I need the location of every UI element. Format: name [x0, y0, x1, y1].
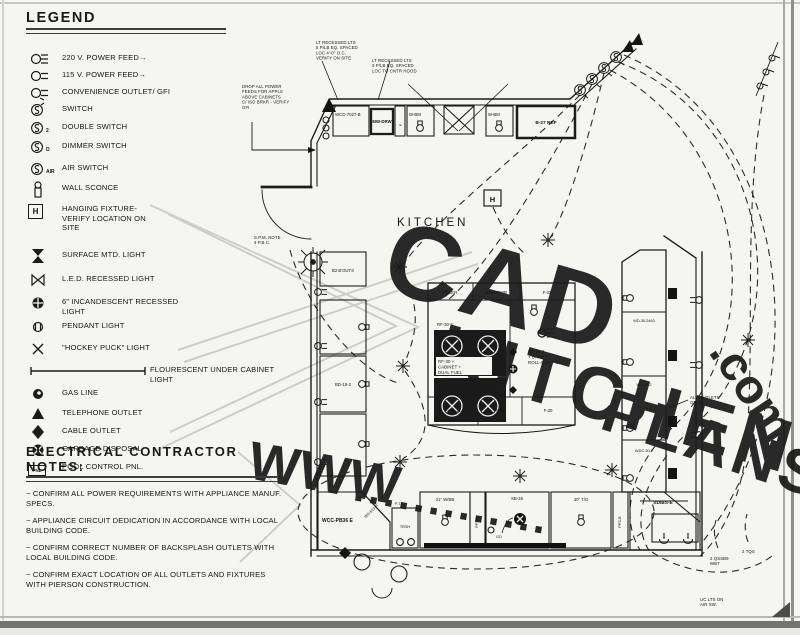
- air-switch-icon: AIR: [28, 160, 62, 178]
- note-item: ~ CONFIRM CORRECT NUMBER OF BACKSPLASH O…: [26, 543, 284, 563]
- legend-item-label: SURFACE MTD. LIGHT: [62, 247, 146, 260]
- legend-item: GAS LINE: [28, 385, 98, 403]
- cabinet-label: PPS-B: [475, 516, 479, 528]
- island-label: F-33: [543, 290, 552, 295]
- disposal-label: GD: [496, 535, 502, 539]
- island-label: RF-30-2: [437, 322, 453, 327]
- telephone-outlet-icon: [28, 405, 62, 423]
- legend-item-label: CABLE OUTLET: [62, 423, 121, 436]
- dimmer-switch-icon: D: [28, 138, 62, 156]
- legend-item-label: "HOCKEY PUCK" LIGHT: [62, 340, 150, 353]
- cabinet-label: WDC-30-2: [635, 449, 653, 453]
- legend-item-label: GAS LINE: [62, 385, 98, 398]
- cable-outlet-icon: [28, 423, 62, 441]
- legend-item: 220 V. POWER FEED→: [28, 50, 147, 68]
- pendant-light-icon: [28, 318, 62, 336]
- island-label: F-30: [496, 408, 505, 413]
- annotation-line: AIR SW.: [700, 602, 717, 607]
- cabinet-label: W-BM: [488, 112, 500, 117]
- cabinet-label: B2 B'OUTS: [332, 268, 354, 273]
- switch-subscript: D: [46, 147, 50, 153]
- hockey-puck-light-icon: [28, 340, 62, 358]
- annotation-line: DUAL FUEL: [438, 370, 463, 375]
- legend-item: FLOURESCENT UNDER CABINET LIGHT: [28, 362, 276, 384]
- outlet-220-icon: [28, 50, 62, 68]
- legend-item-label: PENDANT LIGHT: [62, 318, 125, 331]
- cabinet-label: WCC-7027-B: [335, 112, 361, 117]
- drawing-sheet: CAD KITCHEN PLANS WWW ............. .com: [0, 0, 800, 635]
- door-swing-arc: [262, 190, 311, 239]
- legend-item-label: DIMMER SWITCH: [62, 138, 127, 151]
- surface-mtd-light-icon: [28, 247, 62, 265]
- outlet-box-icon: [668, 468, 677, 479]
- annotation-line: GFI: [242, 105, 249, 110]
- hanging-fixture-icon: H: [28, 201, 62, 219]
- cabinet-label: 21" W/BB: [436, 497, 455, 502]
- legend-item-label: AIR SWITCH: [62, 160, 108, 173]
- cable-outlet-icon: [339, 547, 351, 559]
- legend-item: WALL SCONCE: [28, 180, 118, 200]
- island-label: FWC-12-7: [445, 408, 465, 413]
- legend-item: TELEPHONE OUTLET: [28, 405, 142, 423]
- cabinet-label: WCC-PB36 E: [322, 518, 354, 524]
- annotation-line: VERIFY ON SITE: [316, 56, 351, 61]
- wall-sconce-icon: [28, 180, 62, 200]
- legend-item-label: 6" INCANDESCENT RECESSED LIGHT: [62, 294, 202, 316]
- notes-title: ELECTRICAL CONTRACTOR NOTES:: [26, 444, 296, 474]
- cabinet-label: W-BM: [409, 112, 421, 117]
- switch-subscript: AIR: [46, 169, 55, 175]
- legend-item-label: WALL SCONCE: [62, 180, 118, 193]
- feed-leader-line: [252, 122, 312, 150]
- legend-item-label: HANGING FIXTURE- VERIFY LOCATION ON SITE: [62, 201, 154, 233]
- legend-item: "HOCKEY PUCK" LIGHT: [28, 340, 150, 358]
- annotation-line: GFI B.: [690, 400, 703, 405]
- legend-item-label: 220 V. POWER FEED→: [62, 50, 147, 63]
- legend-item-label: 115 V. POWER FEED→: [62, 67, 146, 80]
- cabinet-label: TRSH: [400, 525, 411, 529]
- legend-item-label: SWITCH: [62, 101, 93, 114]
- island-label: FILLER: [443, 290, 458, 295]
- legend-item: PENDANT LIGHT: [28, 318, 125, 336]
- legend-item-label: DOUBLE SWITCH: [62, 119, 127, 132]
- annotation-line: LOC TO CNTR HOOD: [372, 68, 417, 73]
- cabinet-label: P-TS: [395, 502, 404, 506]
- outlet-box-icon: [668, 416, 677, 427]
- annotation-line: 4 P.B.C.: [254, 240, 270, 245]
- annotation-line: CABINET +: [438, 364, 462, 369]
- under-cabinet-light-icon: [424, 543, 566, 548]
- cabinet-label: MW-DRW: [372, 119, 392, 124]
- annotation-line: WBT: [710, 561, 720, 566]
- double-switch-icon: 2: [28, 119, 62, 137]
- legend-item-label: L.E.D. RECESSED LIGHT: [62, 271, 155, 284]
- annotation-line: RF-24-2: [528, 349, 545, 354]
- note-item: ~ APPLIANCE CIRCUIT DEDICATION IN ACCORD…: [26, 516, 284, 536]
- cabinet-label: SD/BS-E: [653, 500, 673, 506]
- legend-item-label: FLOURESCENT UNDER CABINET LIGHT: [150, 362, 276, 384]
- cabinet-label: SB-36: [511, 496, 524, 501]
- stool: [391, 566, 407, 582]
- power-feed-arrow-icon: [622, 40, 634, 52]
- legend-item: L.E.D. RECESSED LIGHT: [28, 271, 155, 289]
- switch-bank: [575, 33, 780, 98]
- legend-item: CABLE OUTLET: [28, 423, 121, 441]
- annotation-line: ROLL-OUT PNL: [528, 360, 561, 365]
- cabinet-label: WD-30-2463: [633, 319, 655, 323]
- cabinet-label: PPS-B: [618, 516, 622, 528]
- room-label: KITCHEN: [397, 217, 468, 229]
- note-item: ~ CONFIRM EXACT LOCATION OF ALL OUTLETS …: [26, 570, 284, 590]
- legend-item-label: TELEPHONE OUTLET: [62, 405, 142, 418]
- legend-item: CONVENIENCE OUTLET/ GFI: [28, 84, 170, 102]
- contractor-notes: ELECTRICAL CONTRACTOR NOTES: ~ CONFIRM A…: [26, 444, 296, 590]
- outlet-box-icon: [668, 288, 677, 299]
- legend-item: H HANGING FIXTURE- VERIFY LOCATION ON SI…: [28, 201, 154, 233]
- annotation-line: 2 TQS: [742, 549, 755, 554]
- hanging-fixture-tag: H: [484, 190, 501, 206]
- legend-panel: LEGEND 220 V. POWER FEED→ 115 V. POWER F…: [26, 10, 276, 34]
- legend-item: 6" INCANDESCENT RECESSED LIGHT: [28, 294, 202, 316]
- led-recessed-light-icon: [28, 271, 62, 289]
- cabinet-label: WD-24-2: [636, 383, 651, 387]
- incandescent-recessed-light-icon: [28, 294, 62, 312]
- island-label: MW-DRWR: [485, 290, 507, 295]
- cabinet-label: 30" T/O: [574, 497, 589, 502]
- cabinet-label: BD-18-2: [335, 382, 352, 387]
- cabinet-label: B-27 REF: [535, 120, 556, 126]
- switch-subscript: 2: [46, 128, 49, 134]
- legend-item-label: CONVENIENCE OUTLET/ GFI: [62, 84, 170, 97]
- legend-item: AIR AIR SWITCH: [28, 160, 108, 178]
- cabinet-label: F: [399, 123, 403, 126]
- legend-title: LEGEND: [26, 10, 276, 26]
- switch-icon: [28, 101, 62, 119]
- legend-item: D DIMMER SWITCH: [28, 138, 127, 156]
- legend-item: 2 DOUBLE SWITCH: [28, 119, 127, 137]
- notes-rule: [26, 476, 278, 482]
- watermark-dots: .............: [350, 462, 553, 545]
- gas-line-icon: [28, 385, 62, 403]
- legend-item: 115 V. POWER FEED→: [28, 67, 146, 85]
- under-cabinet-light-icon: [28, 362, 150, 380]
- legend-item: SWITCH: [28, 101, 93, 119]
- outlet-box-icon: [668, 350, 677, 361]
- island-label: F-30: [544, 408, 553, 413]
- annotation-line: + BASE +: [528, 354, 548, 359]
- note-item: ~ CONFIRM ALL POWER REQUIREMENTS WITH AP…: [26, 489, 284, 509]
- legend-item: SURFACE MTD. LIGHT: [28, 247, 146, 265]
- outlet-115-icon: [28, 67, 62, 85]
- legend-rule: [26, 28, 226, 34]
- gfi-outlet-icon: [28, 84, 62, 102]
- top-cabinet-run: [252, 61, 575, 153]
- hanging-fixture-letter: H: [490, 195, 495, 204]
- annotation-line: RF-30 +: [438, 359, 455, 364]
